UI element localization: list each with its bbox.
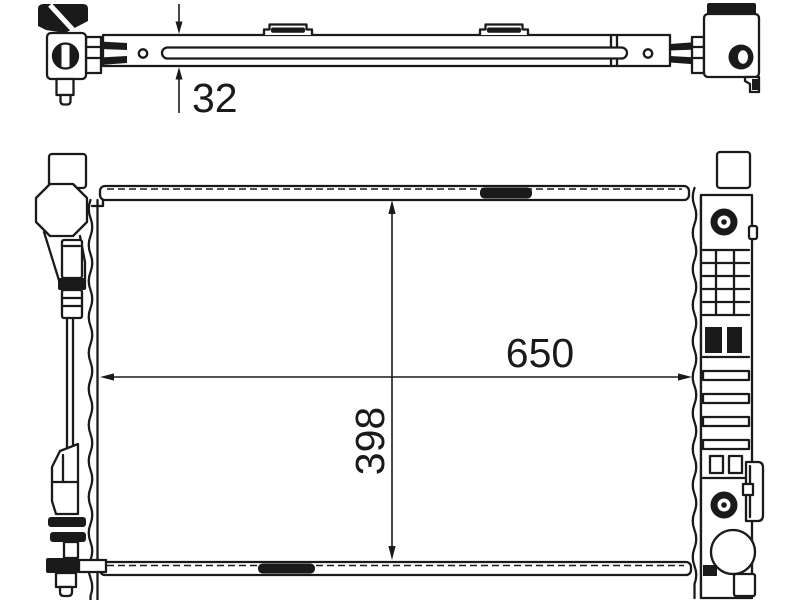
- foot-dark: [46, 558, 79, 573]
- fitting-body: [704, 14, 759, 77]
- tank-block: [727, 327, 742, 353]
- inlet-stub: [717, 152, 750, 188]
- arrowhead-left: [100, 373, 114, 380]
- boss-center: [721, 502, 727, 508]
- right-tank: [701, 152, 763, 598]
- boss-center: [721, 219, 727, 225]
- fitting-cap-dark: [707, 3, 756, 15]
- mounting-clip: [264, 25, 312, 36]
- fitting-bracket: [86, 37, 101, 73]
- ladder-rung: [703, 440, 749, 449]
- drain-plug: [56, 573, 76, 587]
- arrowhead-down: [388, 546, 395, 560]
- arrowhead-up: [388, 200, 395, 214]
- width-value: 650: [506, 330, 574, 376]
- side-tab: [743, 484, 753, 495]
- left-tank: [36, 154, 106, 596]
- port-channel: [62, 42, 70, 70]
- top-left-fitting: [38, 4, 101, 105]
- depth-value: 32: [192, 75, 238, 121]
- fitting-bracket: [692, 37, 704, 73]
- bottom-band-slot: [258, 564, 315, 574]
- dimension-width: 650: [100, 330, 692, 381]
- fitting-nipple: [61, 95, 71, 105]
- radiator-front-view: 650 398: [36, 152, 763, 600]
- top-band-slot: [480, 188, 532, 199]
- dimension-height: 398: [347, 200, 396, 560]
- bottom-band: [100, 562, 691, 575]
- radiator-technical-drawing: 32: [0, 0, 800, 600]
- height-value: 398: [347, 407, 393, 475]
- outlet-port: [711, 530, 755, 574]
- port-hole: [738, 50, 748, 64]
- right-rail-wavy: [693, 188, 697, 598]
- filler-cap: [36, 184, 87, 236]
- clamp-bar: [50, 532, 86, 542]
- arrowhead-right: [678, 373, 692, 380]
- arrowhead-up: [176, 67, 183, 80]
- tank-window: [729, 456, 742, 473]
- side-tab: [749, 226, 757, 239]
- top-header-band: [100, 186, 689, 200]
- top-view-bar: [103, 35, 670, 66]
- foot-bracket: [79, 560, 106, 572]
- drain-nipple: [60, 587, 72, 596]
- sensor-fitting-lower: [62, 290, 82, 318]
- mounting-clip: [480, 25, 528, 36]
- tail-notch: [752, 79, 758, 90]
- clamp-bar: [48, 517, 86, 527]
- sensor-collar: [58, 278, 86, 290]
- clamp-stem: [64, 542, 78, 558]
- radiator-top-view: 32: [38, 3, 759, 121]
- fork-prong: [100, 42, 127, 51]
- ladder-rung: [703, 371, 749, 380]
- tank-window: [710, 456, 723, 473]
- fitting-stub: [57, 79, 74, 95]
- tank-block: [705, 327, 722, 353]
- ladder-rung: [703, 417, 749, 426]
- top-right-fitting: [692, 3, 759, 92]
- ladder-rung: [703, 394, 749, 403]
- technical-drawing-page: 32: [0, 0, 800, 600]
- left-rail-wavy: [89, 200, 93, 600]
- outlet-stub: [734, 574, 755, 596]
- arrowhead-down: [176, 22, 183, 35]
- tank-block: [703, 565, 717, 576]
- mounting-bracket-left: [52, 444, 78, 514]
